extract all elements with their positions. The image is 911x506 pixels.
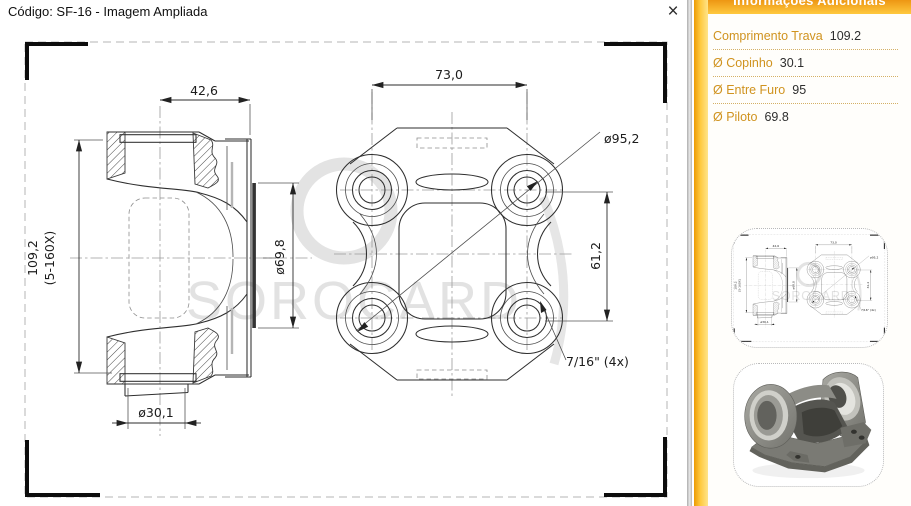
window: Código: SF-16 - Imagem Ampliada × SOROCA… <box>0 0 911 506</box>
info-label: Ø Piloto <box>713 110 757 124</box>
drawing-thumbnail-image <box>733 230 886 346</box>
dim-bore-dia: ø30,1 <box>138 405 173 420</box>
dim-yoke-width: 42,6 <box>190 83 218 98</box>
thumbnail-photo[interactable] <box>733 363 884 487</box>
info-label: Ø Entre Furo <box>713 83 785 97</box>
thumbnail-drawing[interactable] <box>731 228 888 348</box>
info-sidebar: Informações Adicionais Comprimento Trava… <box>694 0 911 506</box>
info-value: 95 <box>792 83 806 97</box>
info-label: Ø Copinho <box>713 56 773 70</box>
info-row-entre-furo: Ø Entre Furo 95 <box>713 77 898 104</box>
sidebar-accent-stripe <box>694 0 708 506</box>
sorocard-watermark: SOROCARD <box>186 164 564 364</box>
close-icon[interactable]: × <box>661 1 685 23</box>
dim-pilot-dia: ø69,8 <box>272 239 287 275</box>
info-row-copinho: Ø Copinho 30.1 <box>713 50 898 77</box>
dim-overall-length: 109,2 <box>25 240 40 276</box>
info-list: Comprimento Trava 109.2 Ø Copinho 30.1 Ø… <box>713 23 898 130</box>
dim-flange-width: 73,0 <box>435 67 463 82</box>
info-value: 109.2 <box>830 29 861 43</box>
dialog-title: Código: SF-16 - Imagem Ampliada <box>8 4 207 19</box>
info-value: 30.1 <box>780 56 804 70</box>
dim-hole-spacing: 61,2 <box>588 242 603 270</box>
yoke-photo <box>736 366 881 484</box>
dim-thread: 7/16" (4x) <box>566 354 629 369</box>
watermark-text: SOROCARD <box>186 271 522 331</box>
technical-drawing: SOROCARD <box>0 24 686 506</box>
info-value: 69.8 <box>764 110 788 124</box>
sheet-border <box>25 42 667 497</box>
dim-length-note: (5-160X) <box>42 231 57 286</box>
sidebar-header: Informações Adicionais <box>708 0 911 14</box>
info-row-piloto: Ø Piloto 69.8 <box>713 104 898 130</box>
scrollbar[interactable] <box>687 0 692 506</box>
sidebar-header-label: Informações Adicionais <box>708 0 911 8</box>
dim-bolt-circle: ø95,2 <box>604 131 639 146</box>
corner-marks <box>25 42 667 497</box>
image-dialog: Código: SF-16 - Imagem Ampliada × SOROCA… <box>0 0 686 506</box>
info-label: Comprimento Trava <box>713 29 823 43</box>
info-row-comprimento: Comprimento Trava 109.2 <box>713 23 898 50</box>
